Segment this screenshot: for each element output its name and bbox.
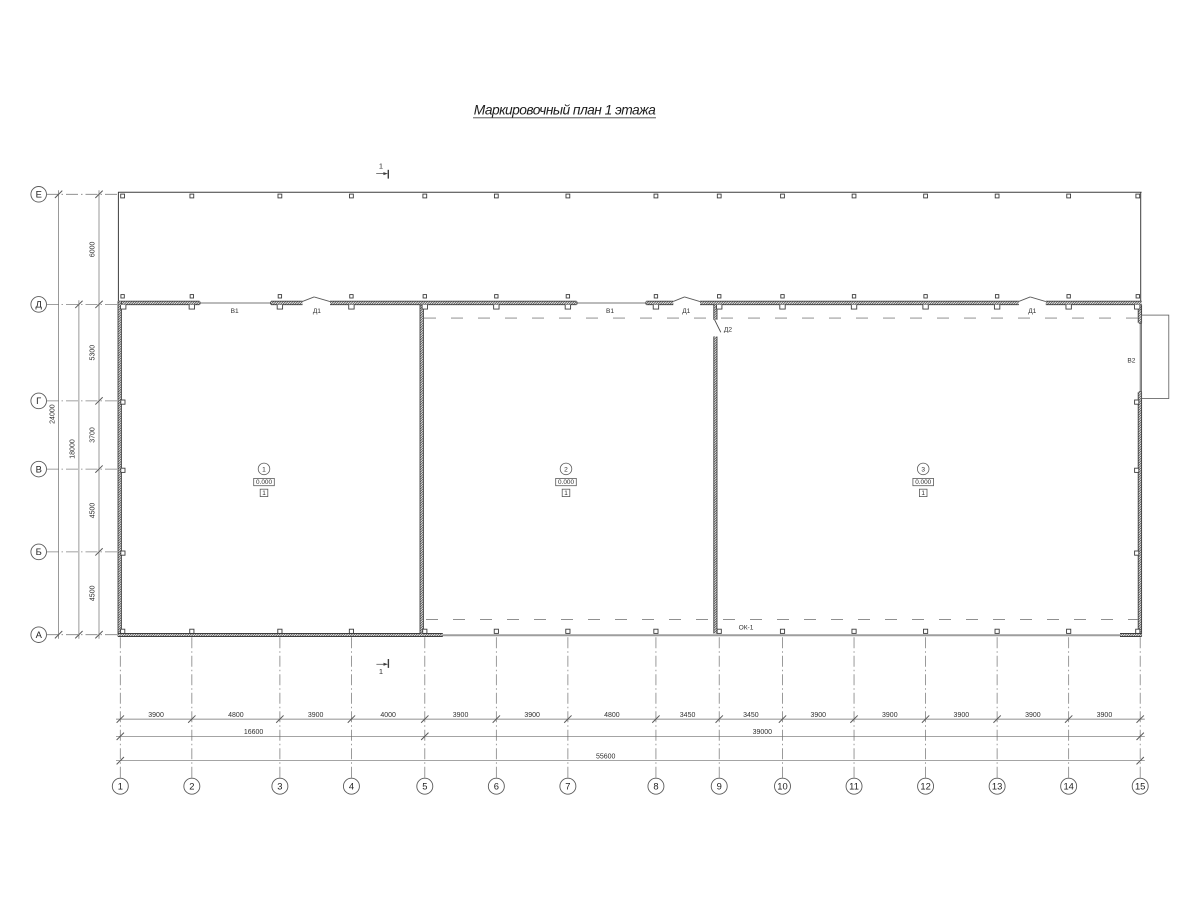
svg-text:11: 11: [849, 781, 859, 792]
svg-text:1: 1: [262, 490, 266, 497]
svg-text:3900: 3900: [308, 712, 324, 719]
svg-text:1: 1: [379, 162, 383, 171]
svg-text:Б: Б: [36, 546, 42, 557]
svg-text:В2: В2: [1127, 357, 1135, 364]
svg-text:1: 1: [564, 490, 568, 497]
svg-text:В1: В1: [231, 308, 239, 315]
svg-text:1: 1: [262, 466, 266, 473]
svg-text:10: 10: [777, 781, 787, 792]
svg-text:Д1: Д1: [1028, 308, 1036, 315]
svg-text:24000: 24000: [49, 404, 56, 424]
svg-text:Д1: Д1: [313, 308, 321, 315]
svg-text:39000: 39000: [753, 729, 773, 736]
svg-text:16600: 16600: [244, 729, 264, 736]
svg-text:4500: 4500: [89, 503, 96, 519]
svg-text:14: 14: [1063, 781, 1073, 792]
svg-text:В1: В1: [606, 308, 614, 315]
svg-text:4800: 4800: [604, 712, 620, 719]
svg-text:6000: 6000: [89, 241, 96, 257]
svg-text:3450: 3450: [743, 712, 759, 719]
svg-text:Д1: Д1: [682, 308, 690, 315]
svg-text:9: 9: [717, 781, 722, 792]
svg-text:3900: 3900: [1097, 712, 1113, 719]
svg-text:15: 15: [1135, 781, 1145, 792]
svg-text:0.000: 0.000: [915, 479, 931, 486]
svg-text:3450: 3450: [680, 712, 696, 719]
svg-text:1: 1: [921, 490, 925, 497]
svg-text:Е: Е: [36, 189, 42, 200]
svg-text:3900: 3900: [882, 712, 898, 719]
svg-text:1: 1: [379, 667, 383, 676]
svg-text:7: 7: [565, 781, 570, 792]
svg-text:55600: 55600: [596, 754, 616, 761]
svg-text:3900: 3900: [148, 712, 164, 719]
svg-text:3900: 3900: [954, 712, 970, 719]
svg-text:2: 2: [189, 781, 194, 792]
svg-text:8: 8: [653, 781, 658, 792]
svg-text:ОК-1: ОК-1: [739, 624, 754, 631]
svg-text:Д: Д: [36, 299, 43, 310]
svg-text:Г: Г: [36, 395, 41, 406]
svg-text:6: 6: [494, 781, 499, 792]
svg-text:3900: 3900: [810, 712, 826, 719]
svg-text:13: 13: [992, 781, 1002, 792]
svg-text:4500: 4500: [89, 585, 96, 601]
svg-text:А: А: [36, 629, 43, 640]
svg-text:0.000: 0.000: [558, 479, 574, 486]
svg-text:4800: 4800: [228, 712, 244, 719]
svg-text:3: 3: [277, 781, 282, 792]
svg-text:5300: 5300: [89, 345, 96, 361]
svg-text:Маркировочный план 1 этажа: Маркировочный план 1 этажа: [474, 103, 656, 118]
svg-text:1: 1: [118, 781, 123, 792]
svg-text:3900: 3900: [524, 712, 540, 719]
svg-text:4: 4: [349, 781, 354, 792]
svg-text:В: В: [36, 463, 42, 474]
svg-text:3: 3: [921, 466, 925, 473]
svg-text:3900: 3900: [453, 712, 469, 719]
svg-text:3900: 3900: [1025, 712, 1041, 719]
svg-text:0.000: 0.000: [256, 479, 272, 486]
svg-text:Д2: Д2: [724, 326, 732, 333]
svg-text:2: 2: [564, 466, 568, 473]
svg-text:18000: 18000: [70, 439, 77, 459]
svg-text:5: 5: [422, 781, 427, 792]
svg-text:12: 12: [920, 781, 930, 792]
svg-text:4000: 4000: [380, 712, 396, 719]
svg-text:3700: 3700: [89, 427, 96, 443]
